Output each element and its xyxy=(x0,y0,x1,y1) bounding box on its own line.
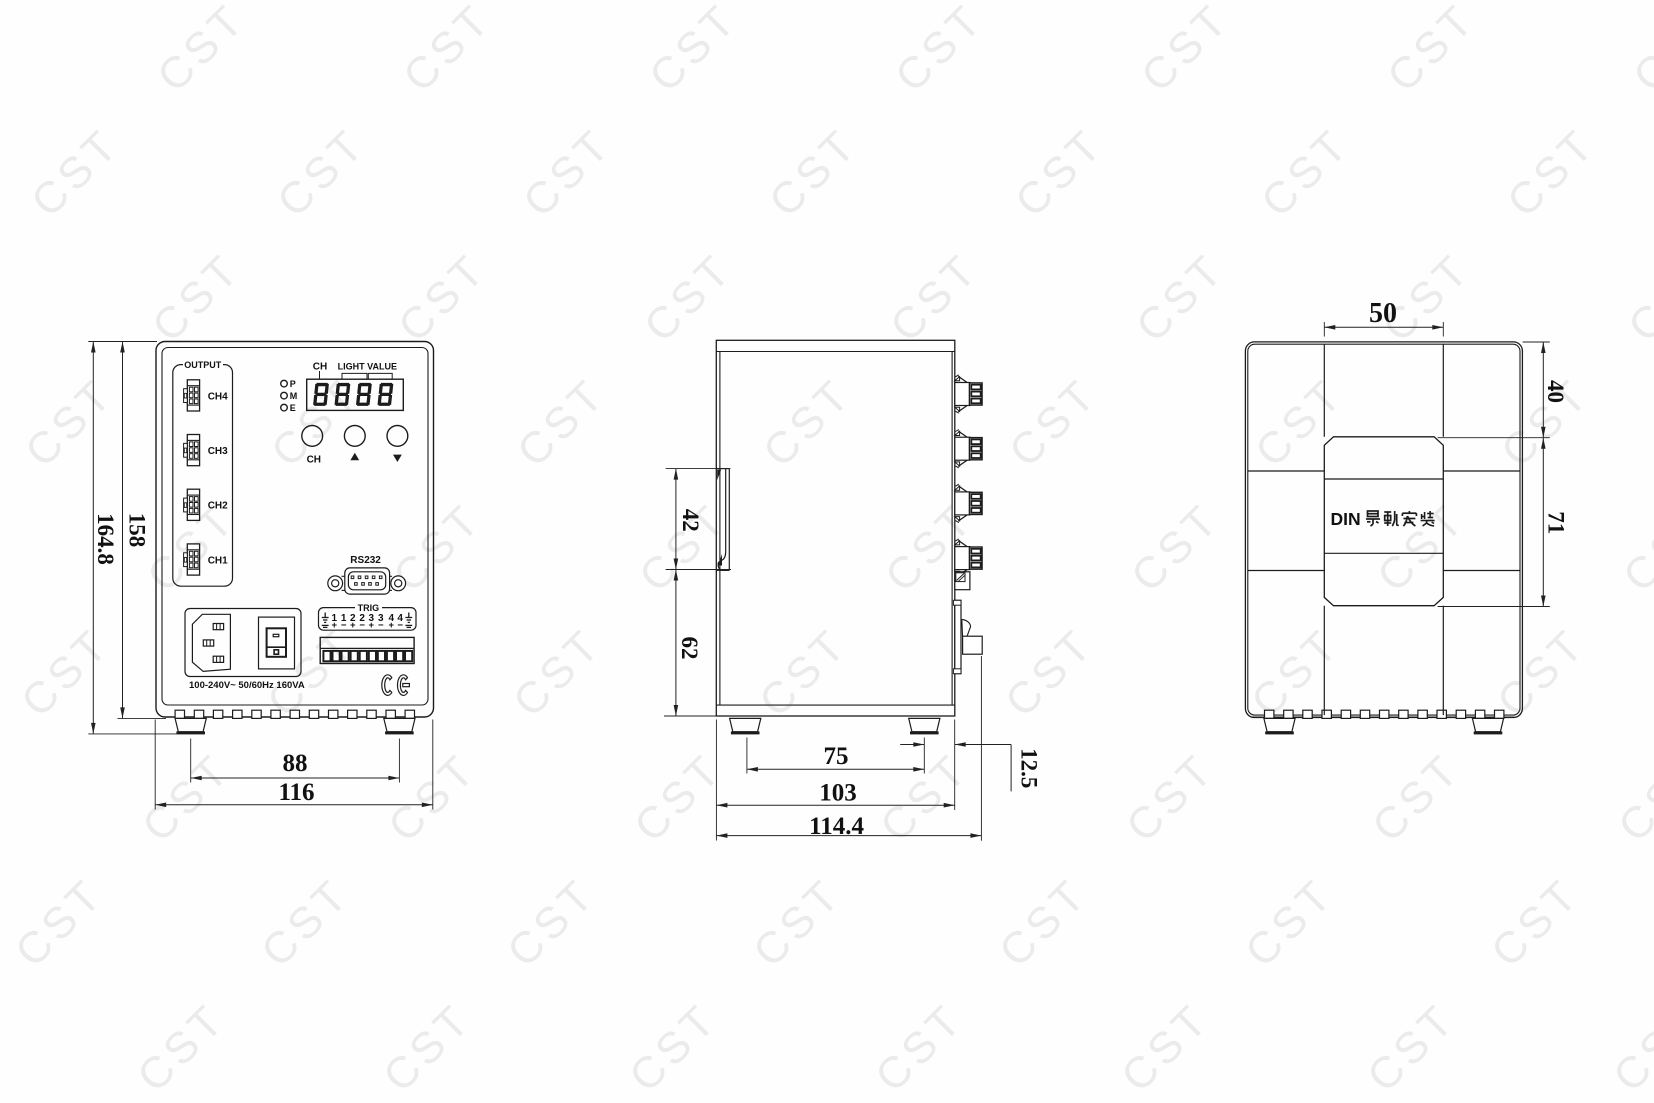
svg-text:RS232: RS232 xyxy=(350,555,381,566)
svg-text:164.8: 164.8 xyxy=(93,513,118,565)
svg-text:CH4: CH4 xyxy=(208,391,228,402)
svg-text:71: 71 xyxy=(1543,511,1568,534)
svg-text:158: 158 xyxy=(125,513,150,548)
svg-text:114.4: 114.4 xyxy=(809,813,864,840)
svg-text:−: − xyxy=(397,620,403,631)
svg-text:DIN: DIN xyxy=(1331,509,1361,529)
svg-text:75: 75 xyxy=(824,743,849,770)
svg-text:TRIG: TRIG xyxy=(358,603,380,613)
svg-text:116: 116 xyxy=(278,779,314,806)
svg-text:40: 40 xyxy=(1543,380,1568,403)
svg-text:103: 103 xyxy=(819,780,857,807)
svg-text:+: + xyxy=(332,620,338,631)
svg-text:CH: CH xyxy=(307,454,321,465)
svg-text:P: P xyxy=(290,379,296,389)
svg-text:−: − xyxy=(359,620,365,631)
svg-text:OUTPUT: OUTPUT xyxy=(184,360,222,370)
svg-text:CH: CH xyxy=(313,362,327,373)
svg-text:E: E xyxy=(290,403,296,413)
svg-text:62: 62 xyxy=(677,637,702,660)
svg-text:CH3: CH3 xyxy=(208,446,228,457)
svg-text:−: − xyxy=(378,620,384,631)
svg-text:LIGHT VALUE: LIGHT VALUE xyxy=(338,362,397,372)
svg-text:+: + xyxy=(369,620,375,631)
svg-text:CH1: CH1 xyxy=(208,555,228,566)
svg-text:CH2: CH2 xyxy=(208,501,228,512)
svg-text:100-240V~ 50/60Hz 160VA: 100-240V~ 50/60Hz 160VA xyxy=(189,680,305,691)
svg-text:12.5: 12.5 xyxy=(1016,748,1041,788)
svg-text:42: 42 xyxy=(678,509,703,532)
svg-text:+: + xyxy=(389,620,395,631)
svg-text:50: 50 xyxy=(1369,298,1397,329)
svg-text:M: M xyxy=(290,391,298,401)
svg-text:−: − xyxy=(341,620,347,631)
svg-text:88: 88 xyxy=(283,750,308,777)
svg-text:+: + xyxy=(350,620,356,631)
